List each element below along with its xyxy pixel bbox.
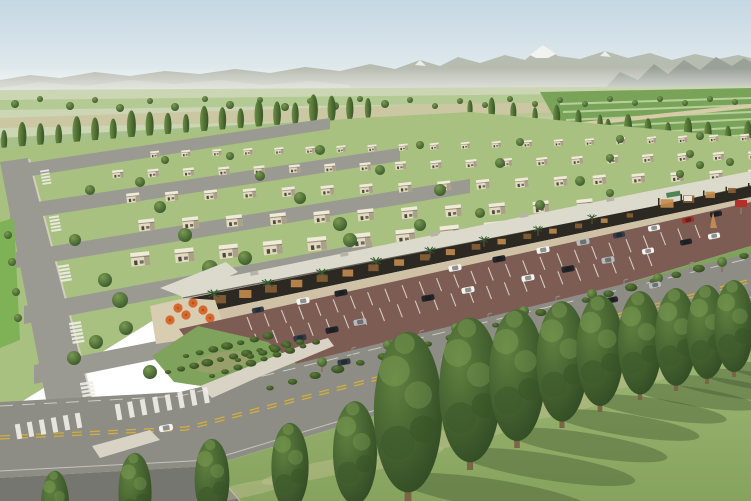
strip-tree [653,273,663,283]
verge-tree [12,288,20,296]
light-pole-arm [624,279,628,280]
column [366,263,368,277]
light-pole-arm [352,347,356,348]
house [181,150,191,157]
house [183,167,195,176]
house [489,202,506,215]
yard-tree [676,170,684,178]
house [218,166,230,175]
house [523,140,533,147]
column [726,187,728,197]
field-tree [171,103,179,111]
field-tree [407,97,413,103]
house [313,210,330,223]
field-tree [281,103,289,111]
house [150,151,160,158]
bed-tree [143,365,157,379]
umbrella-top [169,319,171,321]
house [631,173,645,184]
yard-tree [98,273,112,287]
house [430,160,442,169]
field-tree [507,96,513,102]
poplar-tree [365,98,371,120]
house [126,192,140,203]
field-tree [582,101,588,107]
bush [165,370,171,374]
house [709,134,719,141]
entry-sign [735,200,747,207]
poplar-tree [200,106,208,135]
bush [273,352,282,358]
shop-window [472,244,481,250]
bush [209,374,215,378]
yard-tree [434,184,446,196]
yard-tree [575,176,585,186]
umbrella-top [192,302,194,304]
bush [331,365,344,373]
bush [310,372,321,379]
column [624,212,626,221]
field-tree [707,96,713,102]
bed-tree [67,351,81,365]
field-tree [482,102,488,108]
house [445,204,462,217]
house [212,149,222,156]
house [243,188,257,199]
poplar-tree [146,112,154,140]
house [398,182,412,193]
field-tree [632,100,638,106]
shop-window [420,254,430,260]
bush [237,340,245,345]
column [288,279,290,294]
shop-window [265,285,277,293]
shop-window [523,234,531,239]
strip-tree [317,357,327,367]
house [476,179,490,190]
column [237,289,239,305]
yard-tree [686,150,694,158]
house [492,141,502,148]
column [547,227,549,237]
yard-tree [343,233,357,247]
house [647,136,657,143]
yard-tree [255,171,265,181]
bush [258,350,267,356]
yard-tree [375,165,385,175]
bush [221,369,229,374]
bush [221,342,233,350]
house [678,135,688,142]
house [282,186,296,197]
column [314,273,316,288]
bush [739,253,748,259]
strip-tree [717,257,727,267]
column [340,268,342,282]
bush [235,358,241,362]
house [243,148,253,155]
shop-window [343,270,354,277]
field-tree [557,97,563,103]
bush [356,360,365,366]
shop-window [291,280,302,288]
bush [270,346,281,353]
yard-tree [112,292,128,308]
bush [189,363,199,369]
light-pole-arm [488,313,492,314]
bush [535,309,546,316]
field-tree [226,101,234,109]
bush [288,379,297,385]
bed-tree [119,321,133,335]
shop-window [368,264,378,271]
yard-tree [475,208,485,218]
bush [233,365,242,371]
poplar-tree [346,97,353,122]
house [182,216,199,229]
column [703,191,705,204]
poplar-tree [273,101,281,128]
house [174,247,194,263]
house [401,206,418,219]
yard-tree [226,152,234,160]
bush [603,290,614,297]
bush [183,354,189,358]
umbrella-top [202,309,204,311]
foreground-tree [333,401,377,501]
house [367,144,377,151]
yard-tree [535,200,545,210]
house [336,145,346,152]
field-tree [357,96,363,102]
umbrella-top [209,317,211,319]
house [305,146,315,153]
bush [247,354,255,359]
house [585,138,595,145]
bush [201,359,213,367]
verge-tree [4,231,12,239]
yard-tree [606,189,614,197]
yard-tree [333,217,347,231]
yard-tree [696,161,704,169]
column [418,253,420,266]
column [573,222,575,232]
house [274,147,284,154]
field-tree [607,96,613,102]
shop-window [239,290,251,298]
bush [284,343,291,348]
field-tree [657,96,663,102]
column [521,233,523,244]
light-pole-arm [690,262,694,263]
column [681,194,683,209]
bed-tree [89,335,103,349]
field-tree [432,103,438,109]
yard-tree [416,141,424,149]
bush [177,366,185,371]
house [112,170,124,179]
yard-tree [616,135,624,143]
yard-tree [178,228,192,242]
house [461,142,471,149]
house [270,212,287,225]
yard-tree [161,156,169,164]
field-tree [682,100,688,106]
house [740,134,750,141]
shop-window [498,239,506,245]
house [554,139,564,146]
yard-tree [606,154,614,162]
bush [217,357,225,362]
yard-tree [516,138,524,146]
bush [625,283,638,291]
field-tree [116,104,124,112]
column [495,238,497,249]
shop-window [627,213,633,217]
house [515,177,529,188]
poplar-tree [219,107,227,133]
house [289,164,301,173]
field-tree [147,98,153,104]
house [713,152,725,161]
yard-tree [414,219,426,231]
aerial-render-viewport [0,0,751,501]
light-pole-arm [556,296,560,297]
verge-tree [8,258,16,266]
house [165,191,179,202]
yard-tree [294,192,306,204]
field-tree [66,102,74,110]
house [465,159,477,168]
house [307,236,327,252]
yard-tree [726,158,734,166]
light-pole-arm [420,330,424,331]
house [593,174,607,185]
yard-tree [85,185,95,195]
bush [693,265,705,273]
community-aerial-rendering [0,0,751,501]
poplar-tree [73,116,82,145]
bush [312,339,320,344]
house [226,214,243,227]
bush [250,336,259,342]
bush [246,360,257,367]
yard-tree [154,201,166,213]
field-tree [732,99,738,105]
house [320,185,334,196]
field-tree [37,96,43,102]
shop-window [601,218,608,223]
bush [196,350,204,355]
yard-tree [69,234,81,246]
house [359,162,371,171]
column [658,198,660,215]
house [357,208,374,221]
house [138,218,155,231]
house [398,143,408,150]
poplar-tree [127,110,136,140]
shop-window [706,192,716,198]
column [469,243,471,255]
bush [260,357,267,362]
yard-tree [238,251,252,265]
house [219,244,239,260]
bush [266,386,274,391]
yard-tree [135,177,145,187]
house [130,251,150,267]
house [204,189,218,200]
house [263,240,283,256]
shop-window [549,229,557,234]
column [443,248,445,260]
yard-tree [696,132,704,140]
verge-tree [14,314,22,322]
bush [671,272,681,278]
yard-tree [495,158,505,168]
shop-window [446,249,455,255]
shop-window [661,199,674,208]
bush [285,347,295,354]
bush [208,346,218,352]
column [598,217,600,226]
field-tree [92,97,98,103]
field-tree [11,100,19,108]
shop-window [575,224,582,229]
house [147,168,159,177]
shop-window [394,259,404,266]
column [392,258,394,271]
umbrella-top [185,314,187,316]
bush [296,339,305,345]
field-tree [457,98,463,104]
kiosk [684,196,692,201]
house [395,161,407,170]
bush [262,332,273,339]
field-tree [202,96,208,102]
field-tree [532,101,538,107]
shop-window [728,188,736,193]
house [430,143,440,150]
column [748,183,750,191]
house [536,157,548,166]
yard-tree [315,145,325,155]
poplar-tree [255,100,264,129]
house [642,154,654,163]
house [359,183,373,194]
house [324,163,336,172]
house [554,176,568,187]
column [650,207,652,215]
umbrella-top [177,307,179,309]
field-tree [381,100,389,108]
house [571,156,583,165]
